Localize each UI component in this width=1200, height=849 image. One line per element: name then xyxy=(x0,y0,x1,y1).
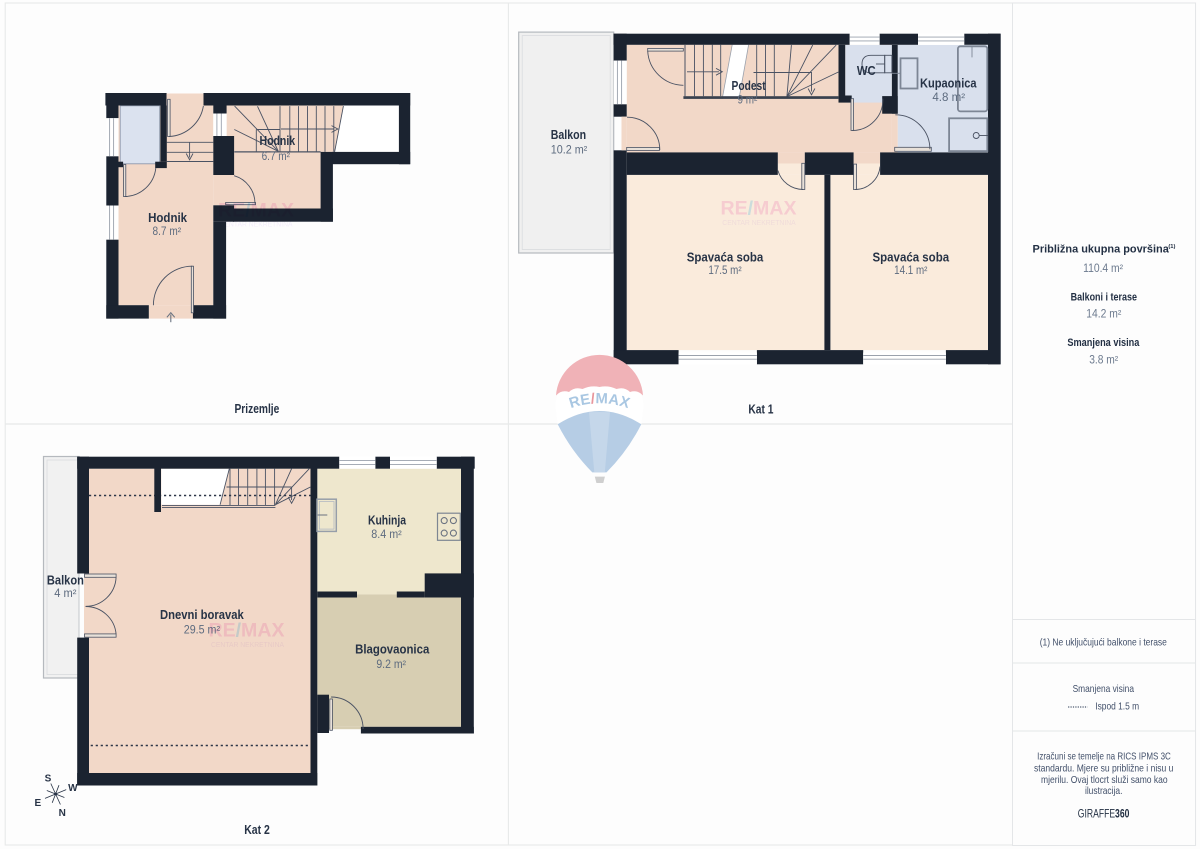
svg-text:(1): (1) xyxy=(1168,244,1175,250)
svg-text:Kat 1: Kat 1 xyxy=(748,401,773,416)
svg-text:4.8 m²: 4.8 m² xyxy=(932,92,965,104)
svg-text:S: S xyxy=(45,774,52,785)
svg-text:Podest: Podest xyxy=(732,78,767,93)
svg-text:ilustracija.: ilustracija. xyxy=(1085,785,1123,797)
svg-text:17.5 m²: 17.5 m² xyxy=(708,265,741,277)
svg-text:Balkon: Balkon xyxy=(551,127,586,142)
svg-text:14.2 m²: 14.2 m² xyxy=(1086,309,1121,321)
svg-text:CENTAR NEKRETNINA: CENTAR NEKRETNINA xyxy=(211,640,284,649)
svg-text:W: W xyxy=(68,783,78,794)
svg-text:Blagovaonica: Blagovaonica xyxy=(355,642,430,657)
svg-text:mjerilu. Ovaj tlocrt služi sam: mjerilu. Ovaj tlocrt služi samo kao xyxy=(1041,774,1168,786)
svg-text:Izračuni se temelje na RICS IP: Izračuni se temelje na RICS IPMS 3C xyxy=(1037,750,1171,762)
svg-text:3.8 m²: 3.8 m² xyxy=(1089,354,1118,366)
svg-text:GIRAFFE360: GIRAFFE360 xyxy=(1078,809,1130,821)
svg-text:8.4 m²: 8.4 m² xyxy=(371,529,402,541)
svg-text:WC: WC xyxy=(857,63,876,78)
svg-text:14.1 m²: 14.1 m² xyxy=(894,265,927,277)
svg-text:Približna ukupna površina: Približna ukupna površina xyxy=(1033,244,1170,256)
svg-text:Ispod 1.5 m: Ispod 1.5 m xyxy=(1095,701,1139,713)
svg-text:8.7 m²: 8.7 m² xyxy=(153,226,182,238)
svg-text:Kuhinja: Kuhinja xyxy=(368,512,407,527)
svg-text:Prizemlje: Prizemlje xyxy=(235,401,280,416)
svg-text:Hodnik: Hodnik xyxy=(260,133,296,148)
svg-text:9 m²: 9 m² xyxy=(738,94,758,106)
svg-text:RE/MAX: RE/MAX xyxy=(218,200,294,222)
svg-text:Spavaća soba: Spavaća soba xyxy=(873,250,950,265)
svg-text:Smanjena visina: Smanjena visina xyxy=(1073,683,1135,695)
svg-text:110.4 m²: 110.4 m² xyxy=(1083,263,1123,275)
svg-text:CENTAR NEKRETNINA: CENTAR NEKRETNINA xyxy=(220,220,293,229)
svg-text:Kupaonica: Kupaonica xyxy=(920,75,977,90)
svg-text:Balkon: Balkon xyxy=(47,573,84,588)
svg-text:4 m²: 4 m² xyxy=(54,588,76,600)
svg-text:6.7 m²: 6.7 m² xyxy=(262,151,291,163)
svg-text:10.2 m²: 10.2 m² xyxy=(551,144,588,156)
svg-text:standardu. Mjere su približne: standardu. Mjere su približne i nisu u xyxy=(1034,762,1174,774)
svg-text:RE/MAX: RE/MAX xyxy=(721,198,797,220)
svg-text:Spavaća soba: Spavaća soba xyxy=(687,250,764,265)
svg-text:Smanjena visina: Smanjena visina xyxy=(1067,337,1140,349)
svg-text:CENTAR NEKRETNINA: CENTAR NEKRETNINA xyxy=(722,218,795,227)
svg-text:N: N xyxy=(59,808,66,819)
svg-text:RE/MAX: RE/MAX xyxy=(209,620,285,642)
svg-text:E: E xyxy=(34,798,41,809)
svg-text:Hodnik: Hodnik xyxy=(148,210,188,225)
svg-text:Kat 2: Kat 2 xyxy=(244,822,270,837)
svg-text:(1) Ne uključujući balkone i t: (1) Ne uključujući balkone i terase xyxy=(1040,637,1167,649)
svg-text:Balkoni i terase: Balkoni i terase xyxy=(1071,292,1137,304)
svg-text:9.2 m²: 9.2 m² xyxy=(376,659,406,671)
